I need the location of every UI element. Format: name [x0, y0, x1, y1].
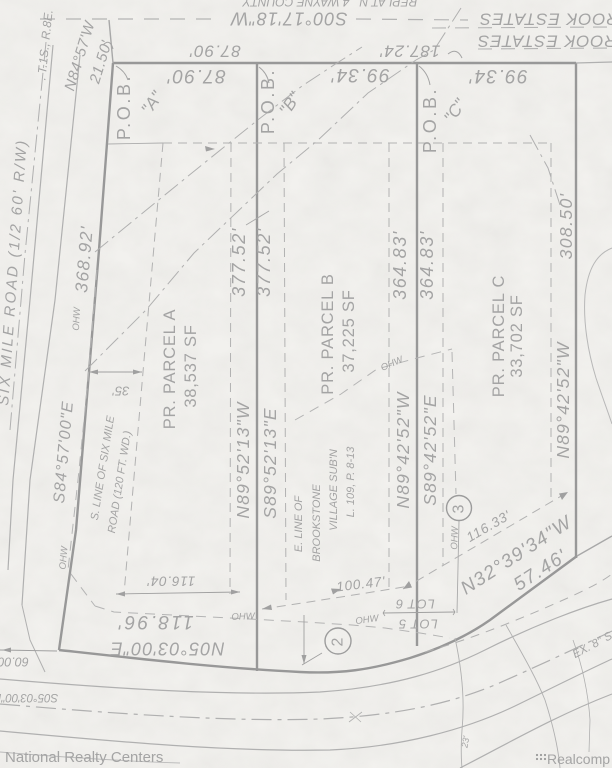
svg-text:37,225 SF: 37,225 SF — [340, 289, 358, 372]
svg-text:377.52': 377.52' — [229, 227, 249, 297]
svg-text:National Realty Centers: National Realty Centers — [5, 749, 163, 766]
svg-text:P.O.B.: P.O.B. — [258, 68, 278, 134]
svg-text:S89°52'13"E: S89°52'13"E — [260, 407, 280, 519]
svg-text:33,702 SF: 33,702 SF — [508, 294, 526, 377]
svg-text:BROOKSTONE: BROOKSTONE — [311, 484, 323, 562]
svg-text:S05°03'00"E: S05°03'00"E — [0, 691, 58, 703]
svg-text:PR. PARCEL B: PR. PARCEL B — [319, 273, 337, 394]
svg-text:364.83': 364.83' — [390, 230, 410, 300]
svg-text:N05°03'00"E: N05°03'00"E — [109, 638, 224, 658]
svg-text:N89°42'52"W: N89°42'52"W — [553, 341, 573, 459]
svg-text:S89°42'52"E: S89°42'52"E — [420, 394, 440, 506]
svg-text:60.00': 60.00' — [0, 655, 29, 669]
svg-text:E. LINE OF: E. LINE OF — [293, 495, 305, 553]
svg-text:377.52': 377.52' — [254, 227, 274, 297]
svg-text:PR. PARCEL A: PR. PARCEL A — [161, 309, 179, 430]
svg-text:38,537 SF: 38,537 SF — [182, 324, 200, 407]
svg-text:REPLAT N., 4 WAYNE COUNTY: REPLAT N., 4 WAYNE COUNTY — [242, 0, 418, 9]
svg-text:87.90': 87.90' — [189, 42, 241, 61]
svg-text:PR. PARCEL C: PR. PARCEL C — [490, 275, 508, 397]
svg-text:P.O.B.: P.O.B. — [420, 87, 440, 153]
svg-text:Realcomp: Realcomp — [547, 751, 610, 767]
svg-text:LOT 6: LOT 6 — [395, 597, 434, 612]
svg-text:L. 109, P. 8-13: L. 109, P. 8-13 — [345, 446, 357, 518]
svg-text:99.34': 99.34' — [330, 64, 390, 85]
svg-text:187.24': 187.24' — [380, 42, 441, 61]
svg-text:OHW: OHW — [449, 525, 461, 550]
svg-text:87.90': 87.90' — [166, 65, 226, 86]
svg-text:N89°52'13"W: N89°52'13"W — [233, 401, 253, 519]
svg-text:BROOK ESTATES: BROOK ESTATES — [477, 32, 612, 51]
svg-text:118.96': 118.96' — [116, 611, 193, 632]
svg-text:OHW: OHW — [58, 545, 71, 570]
svg-text:OHW: OHW — [231, 611, 256, 623]
svg-text:99.34': 99.34' — [468, 65, 528, 86]
svg-text:BROOK ESTATES: BROOK ESTATES — [479, 10, 612, 29]
svg-text:308.50': 308.50' — [556, 193, 576, 260]
svg-text:S00°17'18"W: S00°17'18"W — [229, 8, 347, 28]
svg-text:LOT 5: LOT 5 — [398, 617, 437, 632]
svg-text:VILLAGE SUB'N: VILLAGE SUB'N — [328, 449, 340, 531]
svg-text:P.O.B.: P.O.B. — [114, 74, 134, 140]
svg-text:2: 2 — [330, 637, 347, 646]
svg-text:N89°42'52"W: N89°42'52"W — [393, 391, 413, 509]
svg-text:OHW: OHW — [71, 306, 83, 331]
svg-text:35': 35' — [112, 384, 129, 399]
svg-text:3: 3 — [451, 504, 468, 513]
svg-text:116.04': 116.04' — [147, 573, 195, 588]
svg-text:364.83': 364.83' — [417, 230, 437, 300]
